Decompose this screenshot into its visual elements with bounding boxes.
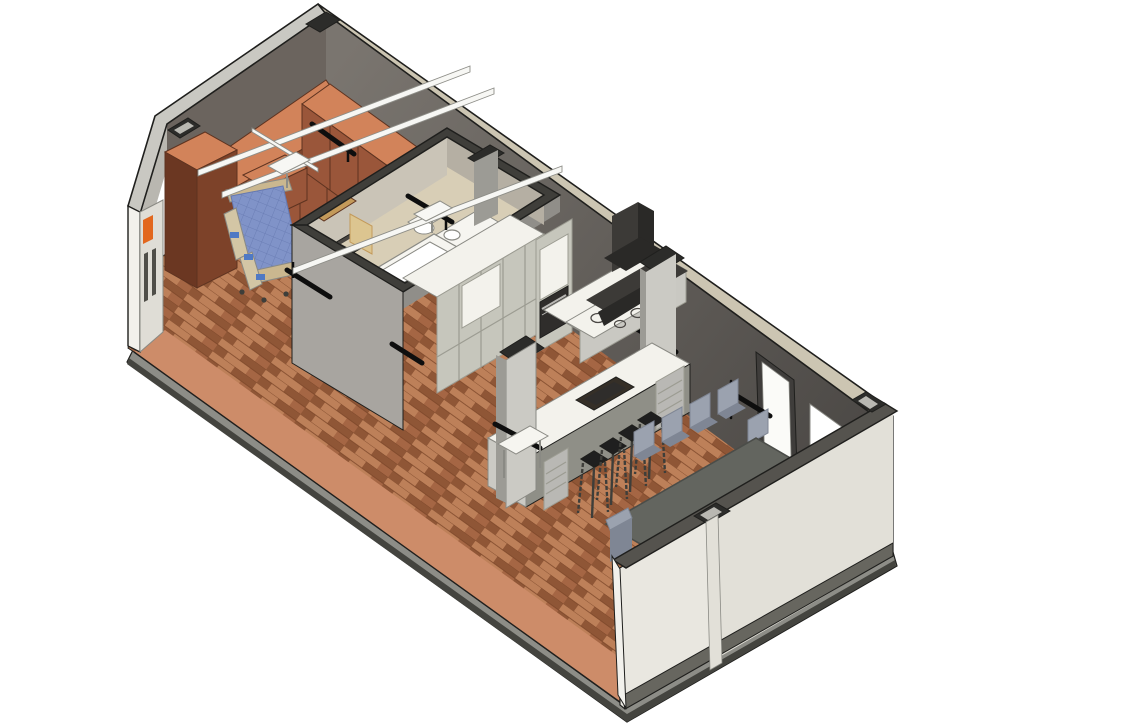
wardrobe-tall-unit	[165, 132, 237, 288]
rail-screen	[256, 274, 265, 280]
isometric-floorplan-render	[0, 0, 1130, 728]
orange-label	[143, 215, 153, 244]
wall-west-headwall	[128, 200, 163, 352]
rail-screen	[230, 232, 239, 238]
panel-slot	[152, 248, 156, 296]
rail-screen	[244, 254, 253, 260]
panel-slot	[144, 252, 148, 302]
viewport-3d[interactable]	[0, 0, 1130, 728]
